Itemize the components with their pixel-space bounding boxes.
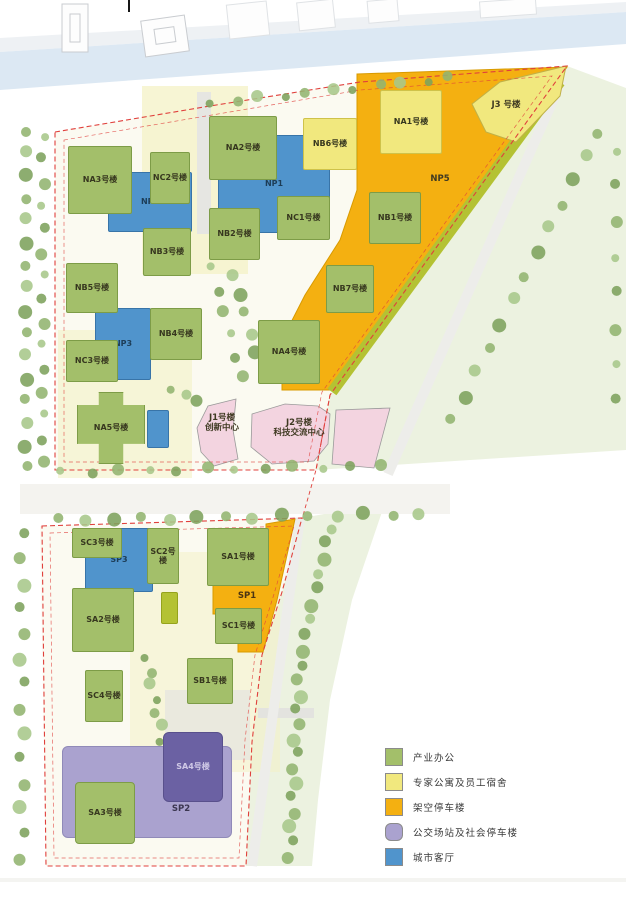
building-label: NA1号楼 — [394, 117, 428, 126]
building-na5-annex — [147, 410, 169, 448]
building-nb6: NB6号楼 — [303, 118, 357, 170]
building-nb5: NB5号楼 — [66, 263, 118, 313]
building-sc4: SC4号楼 — [85, 670, 123, 722]
building-sc1: SC1号楼 — [215, 608, 262, 644]
building-nb2: NB2号楼 — [209, 208, 260, 260]
legend-label: 城市客厅 — [413, 850, 455, 864]
building-label: NB6号楼 — [313, 139, 347, 148]
label-j1-line2: 创新中心 — [194, 423, 250, 433]
building-label: SA3号楼 — [88, 808, 122, 817]
label-j1: J1号楼 创新中心 — [194, 413, 250, 433]
label-j2-line1: J2号楼 — [256, 418, 342, 428]
label-j3: J3 号楼 — [478, 100, 534, 110]
legend-swatch-urban-hall — [385, 848, 403, 866]
building-nc3: NC3号楼 — [66, 340, 118, 382]
building-label: NB1号楼 — [378, 213, 412, 222]
building-label: SA4号楼 — [176, 762, 210, 771]
building-label: NB4号楼 — [159, 329, 193, 338]
legend-item: 城市客厅 — [385, 848, 518, 866]
building-label: SC3号楼 — [80, 538, 113, 547]
building-nb1: NB1号楼 — [369, 192, 421, 244]
building-label: NA3号楼 — [83, 175, 117, 184]
building-label: SC2号楼 — [148, 547, 178, 565]
building-label: NA2号楼 — [226, 143, 260, 152]
building-nc1: NC1号楼 — [277, 196, 330, 240]
legend-swatch-transit — [385, 823, 403, 841]
building-label: NP1 — [265, 179, 283, 188]
label-np5: NP5 — [418, 174, 462, 184]
building-sa2: SA2号楼 — [72, 588, 134, 652]
building-olive-annex — [161, 592, 178, 624]
building-na1: NA1号楼 — [380, 90, 442, 154]
building-label: NB2号楼 — [217, 229, 251, 238]
building-na2: NA2号楼 — [209, 116, 277, 180]
building-label: NB5号楼 — [75, 283, 109, 292]
building-sa4: SA4号楼 — [163, 732, 223, 802]
path — [258, 708, 314, 718]
building-label: NA4号楼 — [272, 347, 306, 356]
building-nb4: NB4号楼 — [150, 308, 202, 360]
label-j1-line1: J1号楼 — [194, 413, 250, 423]
building-label: NC3号楼 — [75, 356, 109, 365]
building-nb3: NB3号楼 — [143, 228, 191, 276]
north-tick-mark — [128, 0, 130, 12]
label-j2-line2: 科技交流中心 — [256, 428, 342, 438]
middle-road — [20, 484, 450, 514]
building-na4: NA4号楼 — [258, 320, 320, 384]
building-sa1: SA1号楼 — [207, 528, 269, 586]
building-sb1: SB1号楼 — [187, 658, 233, 704]
legend-item: 专家公寓及员工宿舍 — [385, 773, 518, 791]
building-label: SC1号楼 — [222, 621, 255, 630]
building-label: SC4号楼 — [87, 691, 120, 700]
legend-label: 产业办公 — [413, 750, 455, 764]
legend-swatch-apartment — [385, 773, 403, 791]
building-label: NC2号楼 — [153, 173, 187, 182]
legend-label: 架空停车楼 — [413, 800, 466, 814]
legend-swatch-office — [385, 748, 403, 766]
legend: 产业办公 专家公寓及员工宿舍 架空停车楼 公交场站及社会停车楼 城市客厅 — [385, 748, 518, 873]
building-label: SA1号楼 — [221, 552, 255, 561]
building-label: SB1号楼 — [193, 676, 226, 685]
legend-label: 公交场站及社会停车楼 — [413, 825, 518, 839]
site-plan: NP2 NP1 NP3 SP3 SA4号楼 NA3号楼 NC2号楼 NA2号楼 … — [0, 0, 626, 901]
legend-item: 产业办公 — [385, 748, 518, 766]
label-j2: J2号楼 科技交流中心 — [256, 418, 342, 438]
building-nb7: NB7号楼 — [326, 265, 374, 313]
legend-item: 公交场站及社会停车楼 — [385, 823, 518, 841]
building-sa3: SA3号楼 — [75, 782, 135, 844]
label-sp1: SP1 — [218, 591, 276, 601]
bottom-strip — [0, 878, 626, 882]
building-label: NC1号楼 — [286, 213, 320, 222]
building-sc3: SC3号楼 — [72, 528, 122, 558]
legend-label: 专家公寓及员工宿舍 — [413, 775, 508, 789]
legend-swatch-parking — [385, 798, 403, 816]
building-na3: NA3号楼 — [68, 146, 132, 214]
building-label: SA2号楼 — [86, 615, 120, 624]
building-label: NB3号楼 — [150, 247, 184, 256]
building-sc2: SC2号楼 — [147, 528, 179, 584]
building-label: NA5号楼 — [94, 423, 128, 432]
legend-item: 架空停车楼 — [385, 798, 518, 816]
building-label: NB7号楼 — [333, 284, 367, 293]
building-nc2: NC2号楼 — [150, 152, 190, 204]
label-sp2: SP2 — [158, 804, 204, 814]
